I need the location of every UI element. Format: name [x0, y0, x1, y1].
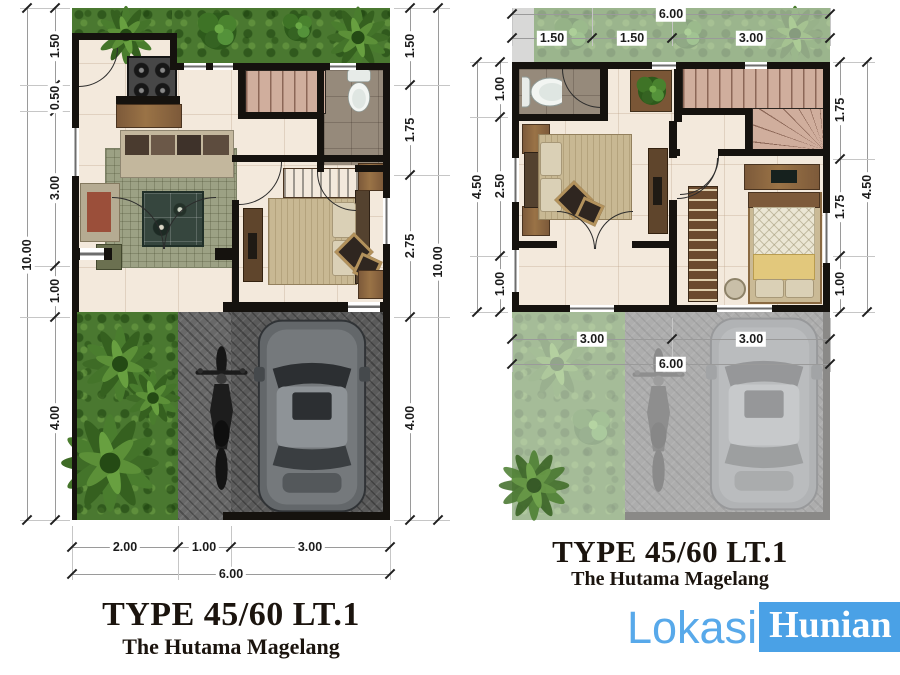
dim-extension-line [394, 85, 450, 86]
wall [512, 114, 608, 121]
dim-label: 3.00 [736, 332, 766, 347]
right-lot [512, 8, 830, 520]
garden-bush-small [272, 5, 324, 48]
window [512, 250, 519, 292]
dim-label: 2.50 [493, 171, 508, 201]
window [348, 302, 380, 312]
lot-edge-wall [72, 312, 77, 520]
dim-label: 1.00 [493, 74, 508, 104]
wall [669, 200, 677, 305]
wall [674, 62, 682, 122]
wall [355, 165, 383, 172]
dim-extension-line [20, 317, 70, 318]
tv-inset [771, 170, 797, 183]
dim-extension-line [394, 175, 450, 176]
left-plan-title-block: TYPE 45/60 LT.1 The Hutama Magelang [72, 597, 390, 659]
plan-title: TYPE 45/60 LT.1 [505, 535, 835, 568]
wall [215, 248, 232, 260]
kitchen-counter [116, 104, 182, 128]
window [80, 248, 104, 260]
lokasi-hunian-logo: Lokasi Hunian [627, 602, 900, 652]
window [184, 63, 206, 70]
wall [238, 63, 245, 119]
dim-label: 1.75 [403, 115, 418, 145]
garden-palm [325, 4, 391, 71]
dim-extension-line [470, 117, 508, 118]
garden-bush [177, 1, 259, 59]
dim-label: 1.50 [48, 31, 63, 61]
dim-label: 0.50 [48, 83, 63, 113]
dim-label: 1.75 [833, 95, 848, 125]
window [213, 63, 233, 70]
left-lot [72, 8, 390, 520]
counter-edge [116, 96, 180, 104]
floor-plan-image: 1.50 0.50 3.00 1.00 4.00 10.00 1.50 1.75… [0, 0, 900, 675]
window [512, 158, 519, 202]
toilet [522, 70, 562, 114]
sofa-cushion [151, 135, 175, 155]
wall [232, 155, 383, 162]
dim-extension-line [178, 526, 179, 580]
right-plan-title-block: TYPE 45/60 LT.1 The Hutama Magelang [505, 535, 835, 591]
wall [669, 121, 677, 158]
wall [682, 108, 752, 115]
bed-blanket [753, 254, 815, 280]
wall [512, 241, 557, 248]
dim-label: 6.00 [216, 567, 246, 582]
dim-label: 4.50 [470, 172, 485, 202]
wall [232, 200, 239, 302]
dim-label: 1.75 [833, 192, 848, 222]
dim-extension-line [592, 8, 593, 46]
tv-inset [653, 177, 662, 205]
sofa-cushion [177, 135, 201, 155]
car [253, 316, 371, 516]
window [823, 213, 830, 263]
dim-label: 1.50 [537, 31, 567, 46]
window [717, 305, 772, 312]
dim-label: 2.00 [110, 540, 140, 555]
logo-text-hunian: Hunian [759, 602, 900, 652]
dim-label: 10.00 [20, 236, 35, 273]
carport-wall [223, 512, 390, 520]
wall [718, 149, 823, 156]
dim-label: 1.00 [493, 269, 508, 299]
dim-extension-line [20, 85, 70, 86]
motorcycle [195, 332, 248, 505]
dim-label: 10.00 [431, 243, 446, 280]
dim-label: 4.00 [403, 403, 418, 433]
pillow [540, 142, 562, 176]
sofa-cushion [125, 135, 149, 155]
dim-extension-line [20, 111, 70, 112]
dresser [744, 164, 820, 190]
dim-label: 6.00 [656, 357, 686, 372]
wall [512, 305, 830, 312]
dim-label: 4.50 [860, 172, 875, 202]
plan-subtitle: The Hutama Magelang [505, 568, 835, 591]
wall [72, 33, 177, 40]
carport-wall [625, 512, 830, 520]
dim-label: 2.75 [403, 231, 418, 261]
sofa-cushion [203, 135, 229, 155]
tv-cabinet [648, 148, 668, 234]
dim-extension-line [394, 317, 450, 318]
stool [724, 278, 746, 300]
nightstand [358, 270, 384, 299]
pillow [785, 279, 814, 298]
plan-title: TYPE 45/60 LT.1 [72, 597, 390, 634]
wall [383, 63, 390, 312]
window [570, 305, 614, 312]
logo-text-lokasi: Lokasi [627, 605, 757, 650]
dim-extension-line [394, 8, 450, 9]
window [652, 62, 676, 69]
dim-extension-line [470, 256, 508, 257]
dim-label: 1.00 [833, 269, 848, 299]
dim-label: 1.50 [617, 31, 647, 46]
corner-palm [484, 448, 584, 523]
window [745, 62, 767, 69]
dim-label: 1.00 [48, 276, 63, 306]
staircase [682, 62, 825, 110]
sofa [120, 130, 234, 178]
toilet [343, 68, 375, 114]
window [72, 128, 79, 176]
dim-label: 1.00 [189, 540, 219, 555]
dim-label: 1.50 [403, 31, 418, 61]
staircase [245, 70, 326, 114]
garden-palm [760, 4, 830, 64]
window [383, 198, 390, 244]
dim-label: 3.00 [736, 31, 766, 46]
carport-wall [383, 312, 390, 520]
pillow [755, 279, 784, 298]
yard-bush [562, 398, 622, 454]
bed-quilt [753, 207, 815, 256]
wall [317, 165, 324, 172]
wall [745, 108, 752, 149]
tv-cabinet [243, 208, 263, 282]
plan-subtitle: The Hutama Magelang [72, 634, 390, 659]
dim-label: 4.00 [48, 403, 63, 433]
dim-label: 3.00 [577, 332, 607, 347]
dim-label: 3.00 [48, 173, 63, 203]
tv-inset [248, 233, 257, 259]
shelf-unit [688, 186, 718, 302]
window [330, 63, 356, 70]
bed-headboard [748, 192, 820, 208]
wall [600, 62, 608, 121]
dim-label: 3.00 [295, 540, 325, 555]
wall [823, 62, 830, 312]
wall [245, 112, 324, 119]
wall [632, 241, 677, 248]
dim-extension-line [394, 520, 450, 521]
staircase-winder [752, 108, 825, 151]
indoor-plant [630, 68, 674, 112]
dim-label: 6.00 [656, 7, 686, 22]
armchair-seat [87, 192, 111, 232]
